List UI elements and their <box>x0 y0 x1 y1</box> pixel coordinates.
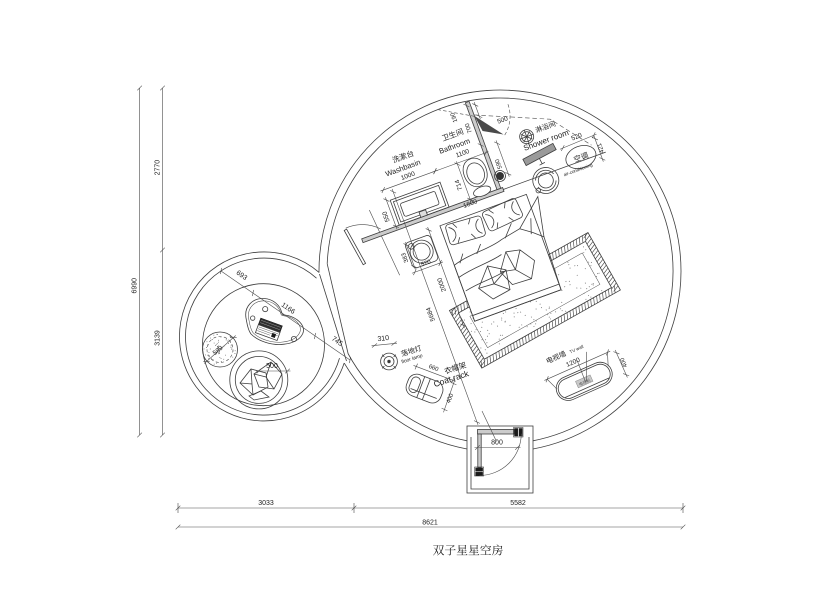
svg-text:800: 800 <box>491 440 503 447</box>
svg-text:5582: 5582 <box>510 500 526 507</box>
svg-text:500: 500 <box>266 363 278 370</box>
svg-text:3033: 3033 <box>258 500 274 507</box>
svg-text:3139: 3139 <box>155 330 162 346</box>
svg-text:310: 310 <box>377 335 389 343</box>
svg-text:8621: 8621 <box>422 520 438 527</box>
svg-text:2770: 2770 <box>155 160 162 176</box>
svg-text:6990: 6990 <box>132 278 139 294</box>
